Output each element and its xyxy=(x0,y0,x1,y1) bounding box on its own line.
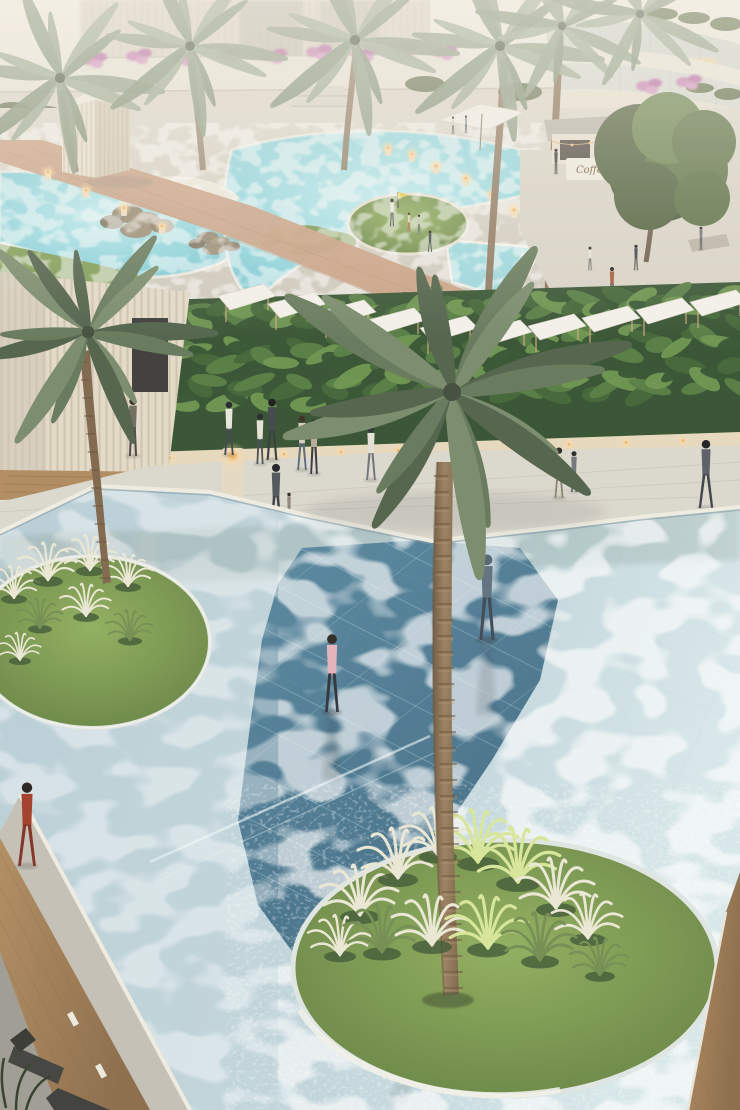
rendering-artwork: Coffee xyxy=(0,0,740,1110)
warm-tint xyxy=(0,0,740,1110)
resort-pool-rendering: Coffee xyxy=(0,0,740,1110)
